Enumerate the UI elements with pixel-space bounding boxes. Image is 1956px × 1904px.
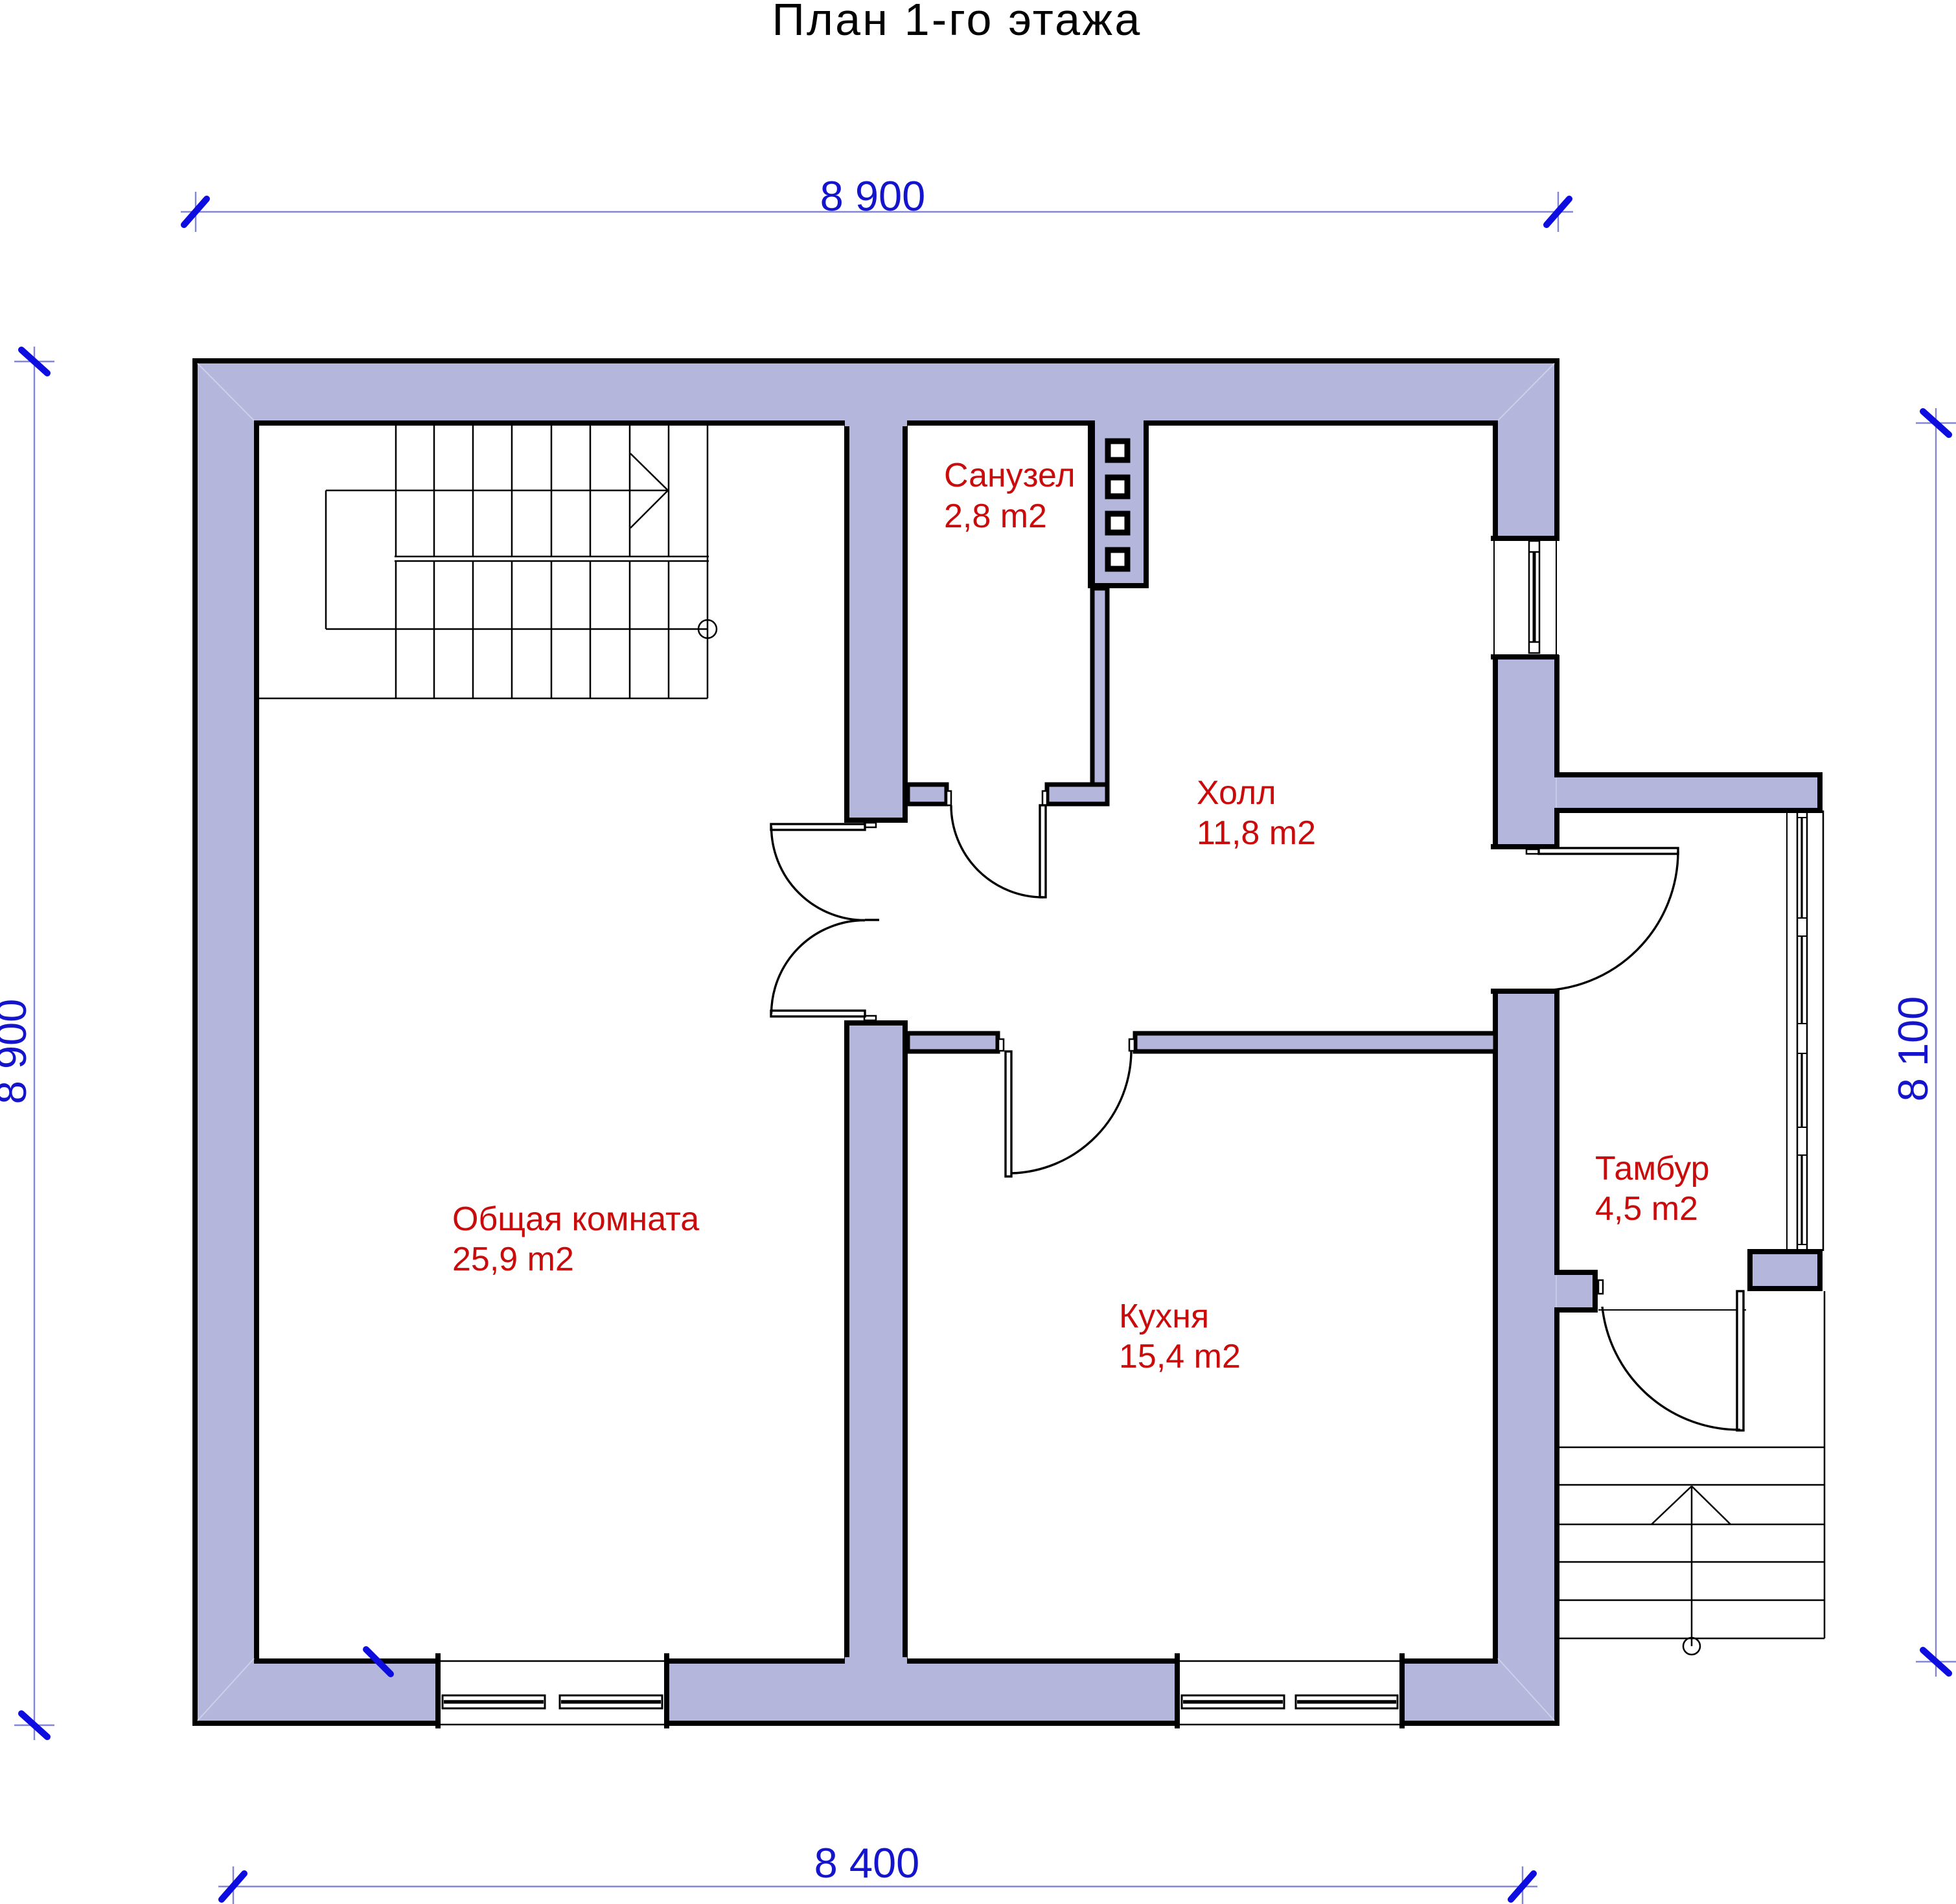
svg-text:25,9 m2: 25,9 m2 xyxy=(452,1241,574,1278)
svg-text:8 100: 8 100 xyxy=(1889,996,1937,1102)
svg-text:Общая комната: Общая комната xyxy=(452,1200,699,1238)
svg-text:Тамбур: Тамбур xyxy=(1595,1150,1710,1187)
svg-text:Санузел: Санузел xyxy=(944,457,1076,494)
svg-text:8 900: 8 900 xyxy=(0,999,35,1105)
svg-text:8 400: 8 400 xyxy=(814,1839,920,1887)
svg-text:Кухня: Кухня xyxy=(1119,1298,1209,1335)
svg-text:4,5 m2: 4,5 m2 xyxy=(1595,1190,1698,1228)
svg-text:Холл: Холл xyxy=(1197,774,1276,812)
svg-text:2,8 m2: 2,8 m2 xyxy=(944,498,1047,535)
svg-text:11,8 m2: 11,8 m2 xyxy=(1197,814,1316,852)
svg-text:План 1-го этажа: План 1-го этажа xyxy=(772,0,1142,45)
svg-text:8 900: 8 900 xyxy=(820,172,926,220)
svg-text:15,4 m2: 15,4 m2 xyxy=(1119,1338,1241,1375)
